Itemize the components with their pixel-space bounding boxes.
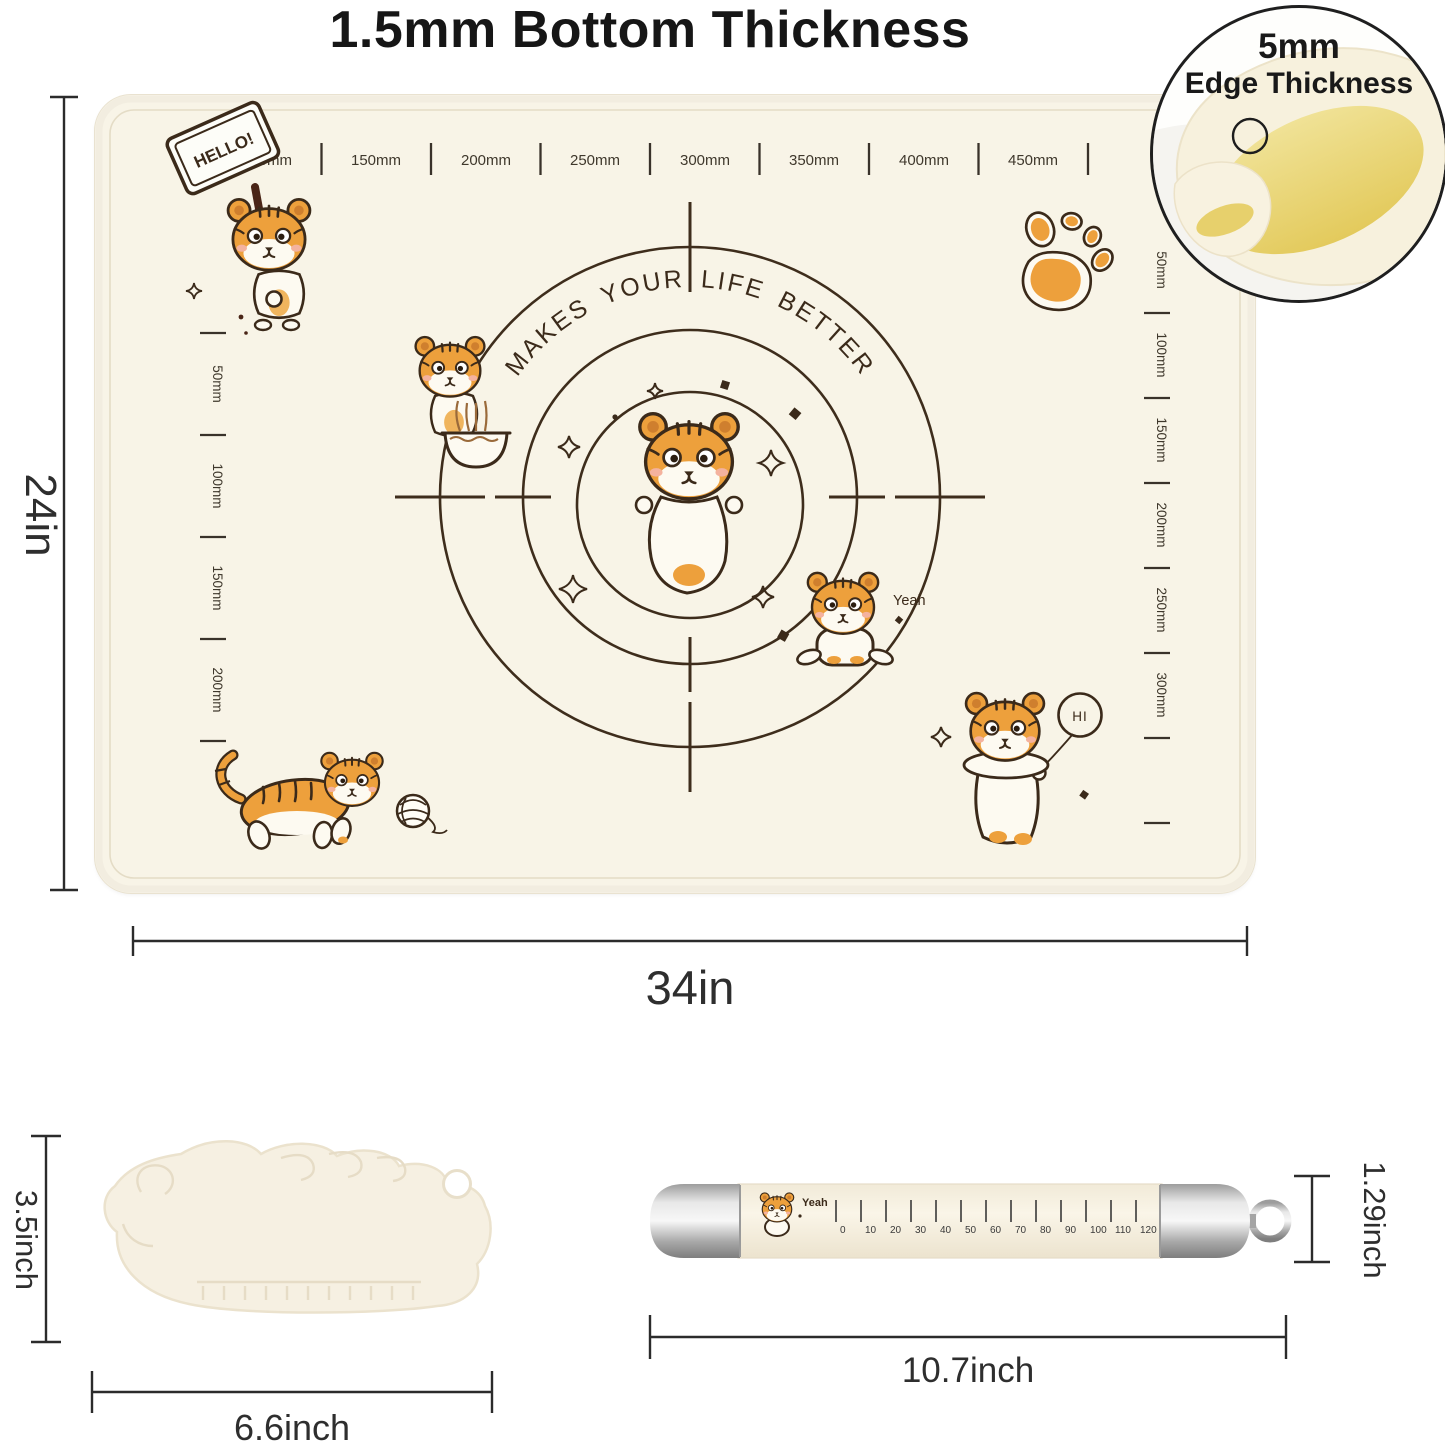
edge-thickness-inset: 5mm Edge Thickness (1150, 5, 1445, 303)
hanging-hole (444, 1171, 471, 1198)
ruler-label: 200mm (461, 152, 511, 169)
yeah-tiger-sticker: Yeah (796, 573, 926, 667)
yeah-text: Yeah (893, 593, 926, 609)
mat-left-ruler-labels: 50mm 100mm 150mm 200mm (210, 365, 225, 712)
tiger-face-icon (808, 573, 878, 634)
ruler-label: 250mm (1154, 587, 1169, 632)
scraper-height-label: 3.5inch (9, 1190, 44, 1290)
noodle-tiger-sticker (416, 337, 510, 467)
scale-label: 100 (1090, 1225, 1107, 1236)
arc-slogan-text: MAKES YOUR LIFE BETTER (500, 265, 881, 381)
pin-left-cap (650, 1184, 740, 1258)
pin-diameter-label: 1.29inch (1357, 1161, 1392, 1278)
inset-size-label: 5mm (1153, 28, 1445, 67)
pin-decal-text: Yeah (802, 1197, 828, 1209)
tiger-face-icon (760, 1193, 793, 1222)
hanging-ring-icon (1252, 1203, 1288, 1239)
scale-label: 120 (1140, 1225, 1157, 1236)
ruler-label: 300mm (680, 152, 730, 169)
hello-sign: HELLO! (165, 100, 281, 195)
paw-print-icon (1022, 209, 1117, 310)
scale-label: 40 (940, 1225, 952, 1236)
scraper-width-label: 6.6inch (234, 1407, 350, 1447)
product-dimension-diagram: 1.5mm Bottom Thickness (0, 0, 1445, 1447)
ruler-label: 50mm (210, 365, 225, 403)
pastry-mat: 100mm 150mm 200mm 250mm 300mm 350mm 400m… (95, 95, 1255, 893)
ruler-label: 400mm (899, 152, 949, 169)
inset-caption: Edge Thickness (1153, 67, 1445, 102)
scale-label: 90 (1065, 1225, 1077, 1236)
pin-length-label: 10.7inch (902, 1351, 1034, 1390)
tiger-face-icon (416, 337, 485, 397)
ruler-label: 100mm (210, 463, 225, 508)
mat-right-ruler (1144, 313, 1170, 823)
tiger-body (431, 393, 477, 437)
pin-right-cap (1160, 1184, 1250, 1258)
ruler-label: 200mm (1154, 502, 1169, 547)
mat-right-ruler-labels: 50mm 100mm 150mm 200mm 250mm 300mm (1154, 251, 1169, 717)
running-tiger-sticker (215, 753, 383, 852)
arc-slogan: MAKES YOUR LIFE BETTER (500, 265, 881, 381)
ruler-label: 250mm (570, 152, 620, 169)
hello-tiger-sticker: HELLO! (165, 100, 310, 334)
mat-width-label: 34in (646, 961, 735, 1014)
scale-label: 50 (965, 1225, 977, 1236)
hi-balloon-text: HI (1072, 709, 1088, 724)
ruler-label: 200mm (210, 667, 225, 712)
rolling-pin: Yeah 0 10 20 30 40 50 60 70 80 90 100 11… (640, 1170, 1340, 1280)
page-title: 1.5mm Bottom Thickness (190, 0, 1110, 60)
ruler-label: 450mm (1008, 152, 1058, 169)
tiger-face-icon (640, 414, 738, 499)
ruler-label: 150mm (351, 152, 401, 169)
mat-top-ruler (212, 143, 1088, 175)
scale-label: 0 (840, 1225, 846, 1236)
ruler-label: 150mm (210, 565, 225, 610)
tiger-face-icon (321, 753, 382, 806)
ruler-label: 300mm (1154, 672, 1169, 717)
scale-label: 80 (1040, 1225, 1052, 1236)
hi-tiger-sticker: HI (931, 693, 1102, 845)
tiger-face-icon (966, 693, 1044, 760)
ruler-label: 150mm (1154, 417, 1169, 462)
scale-label: 20 (890, 1225, 902, 1236)
ruler-label: 100mm (1154, 332, 1169, 377)
scale-label: 110 (1115, 1225, 1131, 1236)
pin-body (738, 1184, 1162, 1258)
scale-label: 10 (865, 1225, 877, 1236)
ruler-label: 350mm (789, 152, 839, 169)
mat-height-label: 24in (16, 473, 65, 556)
scale-label: 70 (1015, 1225, 1027, 1236)
yarn-ball-icon (397, 795, 447, 833)
tiger-face-icon (228, 199, 310, 270)
scale-label: 30 (915, 1225, 927, 1236)
dough-scraper (85, 1128, 505, 1343)
scale-label: 60 (990, 1225, 1002, 1236)
